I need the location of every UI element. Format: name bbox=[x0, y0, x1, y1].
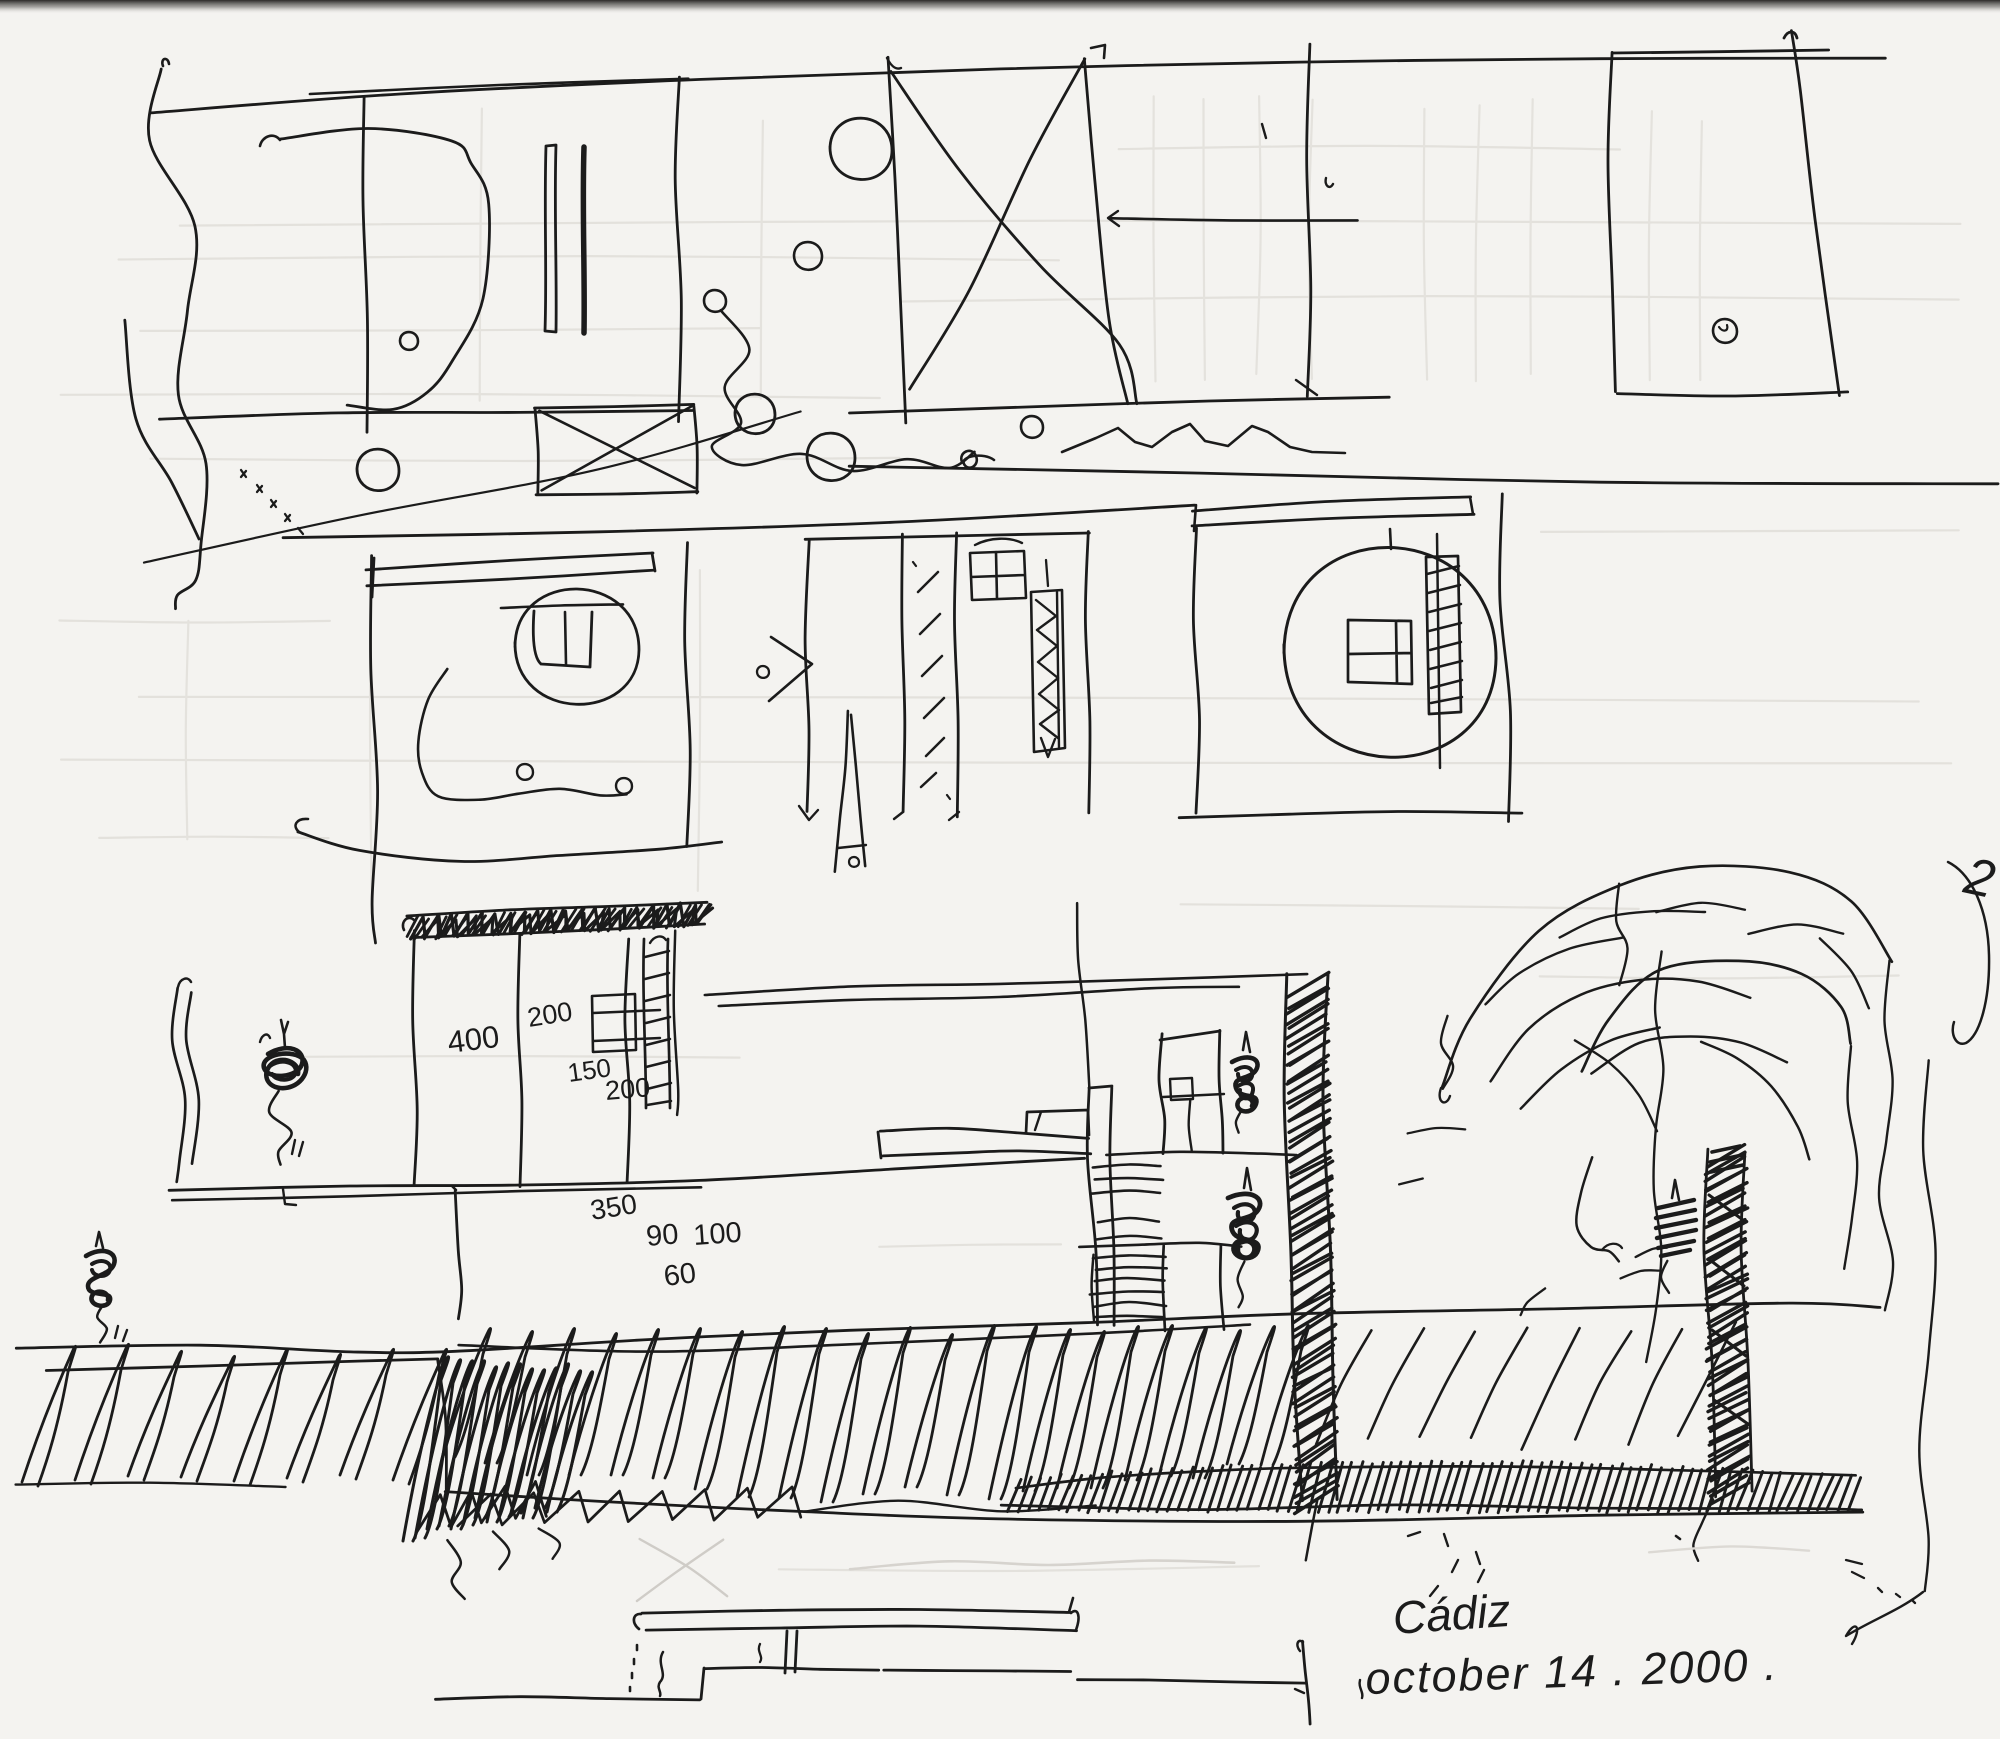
svg-text:60: 60 bbox=[662, 1257, 698, 1293]
svg-text:Cádiz: Cádiz bbox=[1391, 1584, 1512, 1644]
svg-text:200: 200 bbox=[604, 1072, 652, 1106]
svg-text:90: 90 bbox=[645, 1218, 680, 1253]
svg-text:400: 400 bbox=[446, 1019, 502, 1060]
svg-text:100: 100 bbox=[692, 1217, 743, 1252]
